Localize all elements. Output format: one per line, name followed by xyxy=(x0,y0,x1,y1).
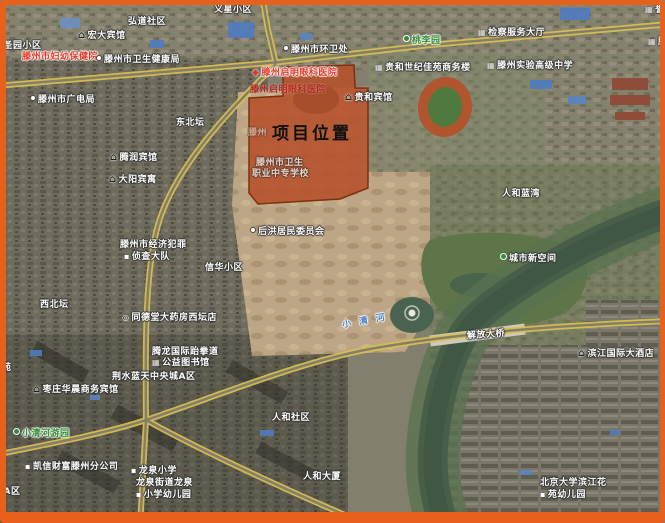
map-screenshot: 义星小区弘道社区宏大宾馆科圣园小区滕州市妇幼保健院滕州市卫生健康局滕州市环卫处检… xyxy=(0,0,665,523)
satellite-map[interactable] xyxy=(0,0,665,523)
